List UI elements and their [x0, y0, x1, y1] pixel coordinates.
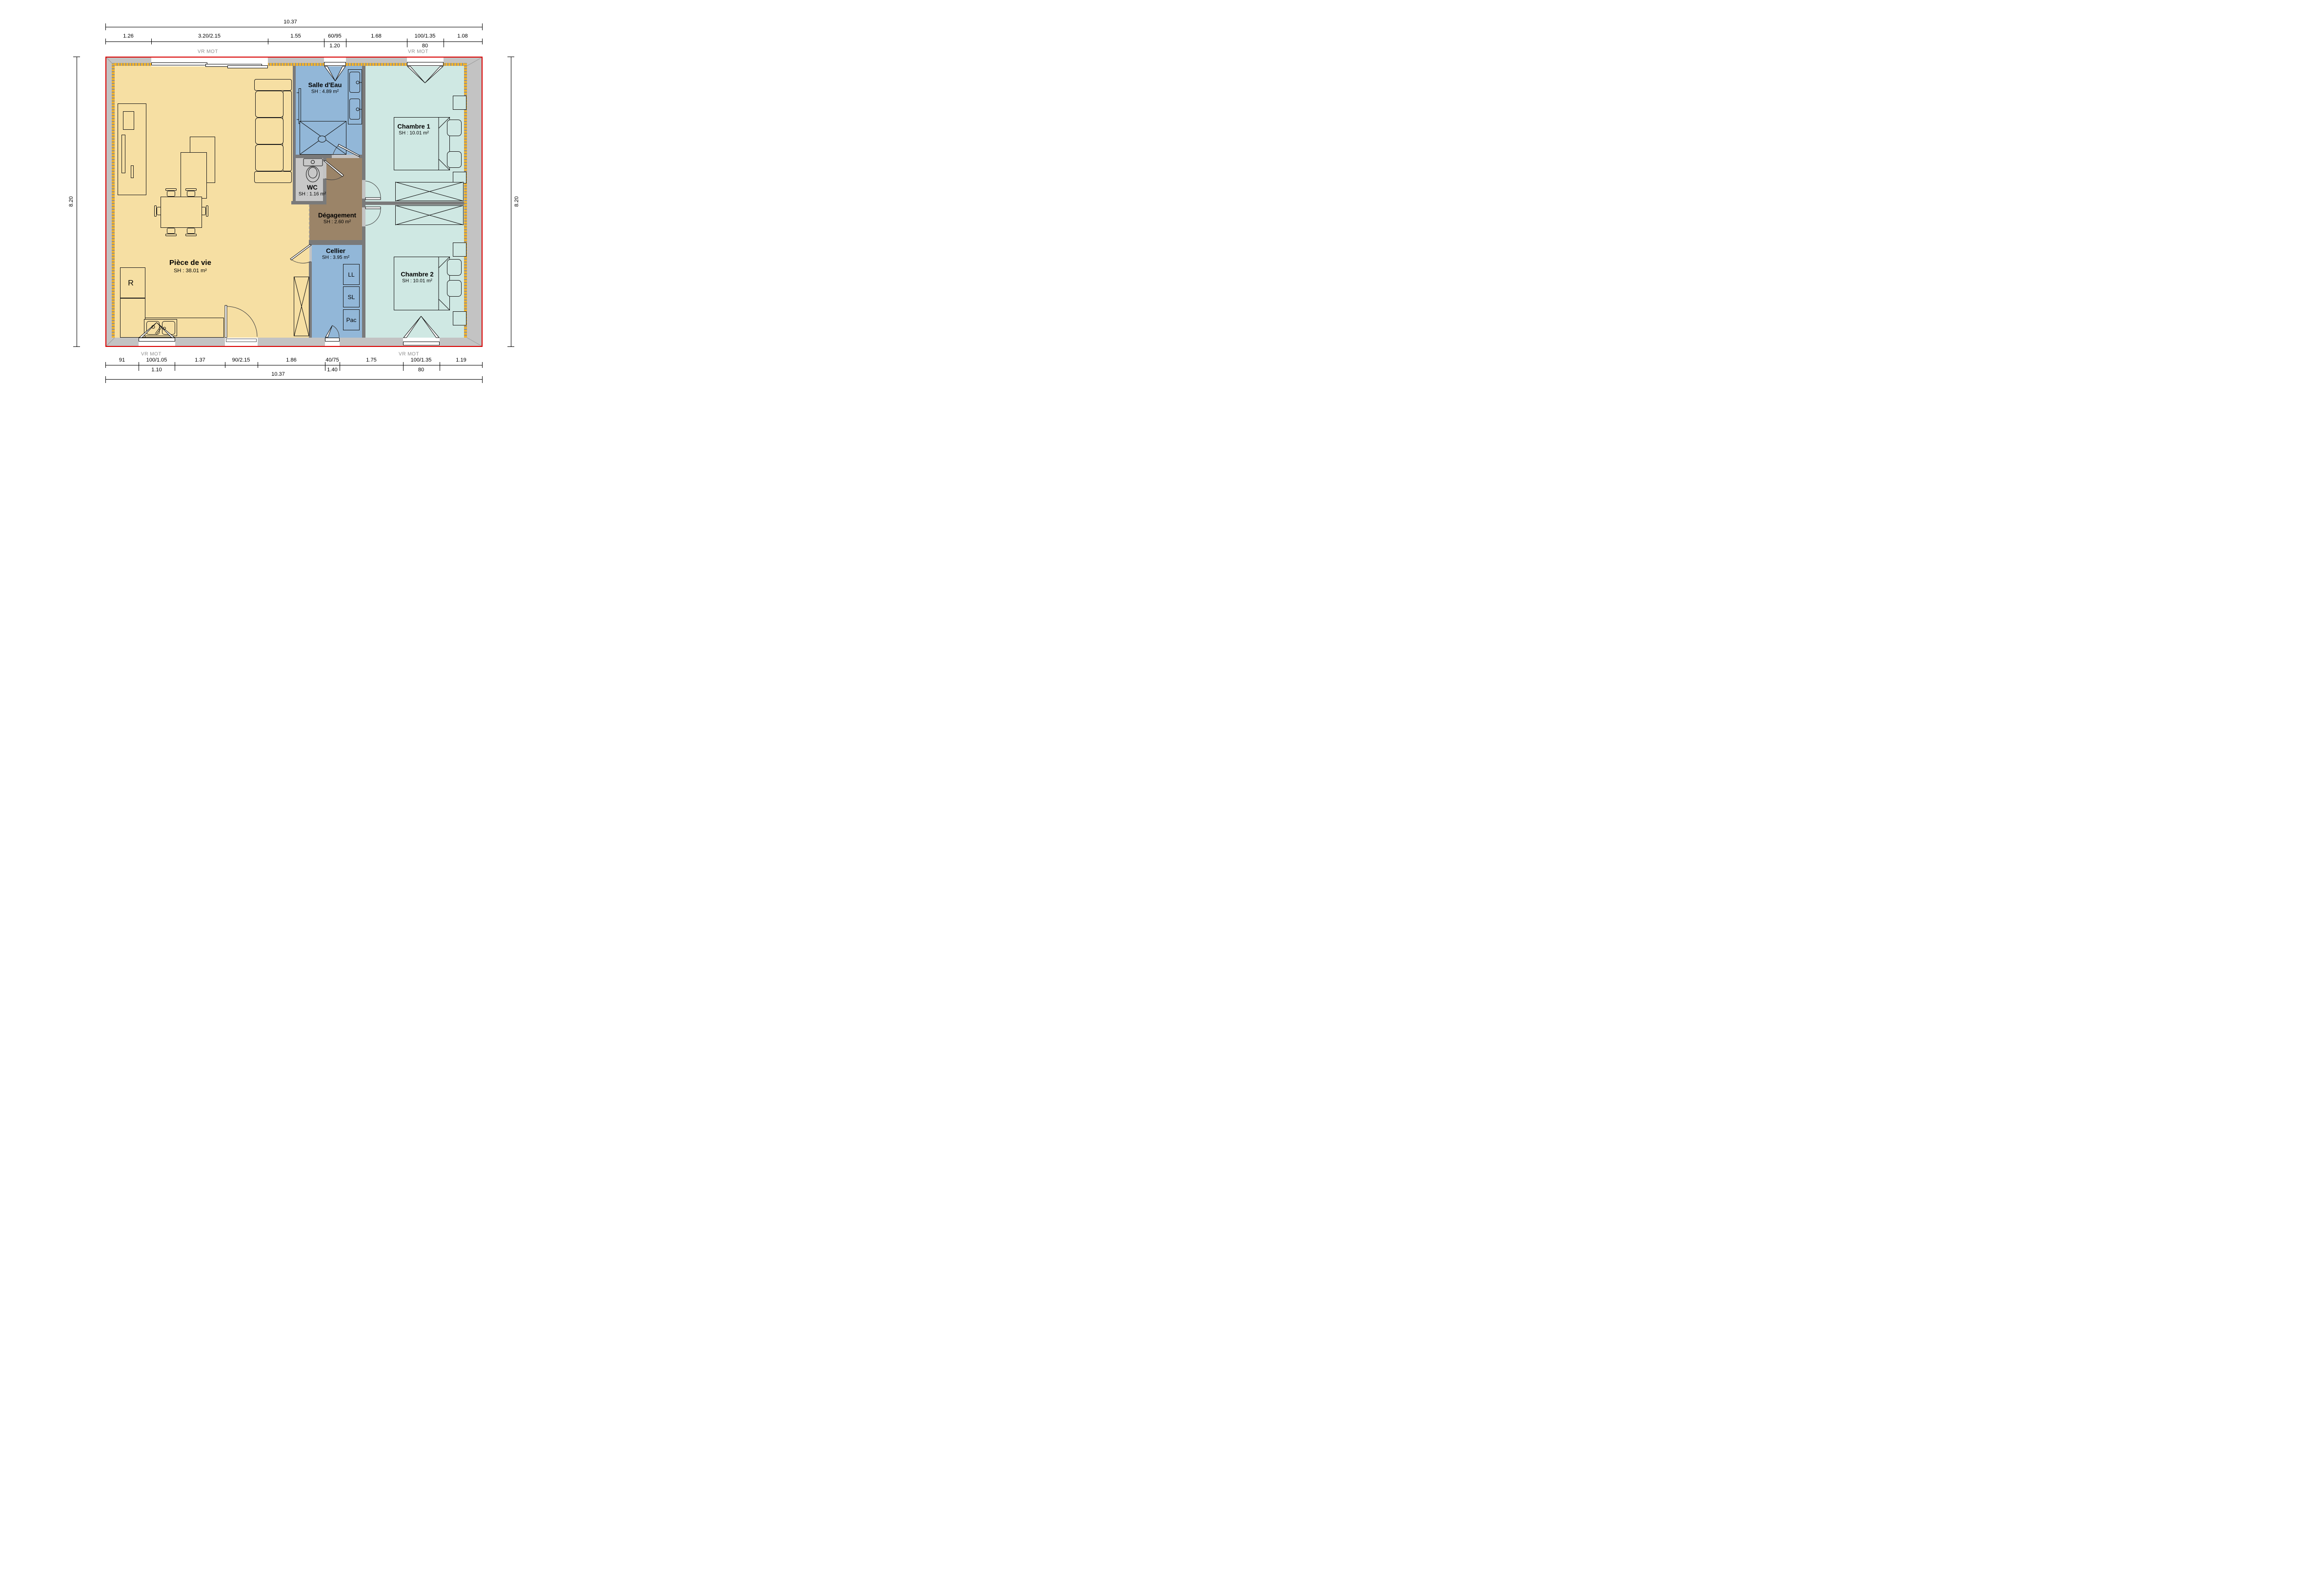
- window-60-95-sill: [324, 62, 346, 66]
- window-100-135-top-sill: [407, 62, 444, 66]
- dryer-label: SL: [348, 294, 355, 301]
- sofa-seat-3: [255, 144, 283, 171]
- window-100-105-sill: [139, 338, 175, 342]
- dim-top-seg-1: 1.26: [123, 33, 133, 39]
- dim-bottom-seg-8: 100/1.35: [411, 357, 432, 363]
- dim-bottom-sub-110: 1.10: [151, 367, 162, 373]
- dim-right-overall: 8.20: [514, 196, 520, 206]
- dim-top-seg-4: 60/95: [328, 33, 342, 39]
- shutter-label-bottom-left: VR MOT: [141, 352, 162, 357]
- dim-bottom-seg-7: 1.75: [366, 357, 376, 363]
- floor-hallway-upper: [326, 158, 362, 204]
- shutter-label-bottom-right: VR MOT: [399, 352, 419, 357]
- wall-bathroom-left: [293, 66, 296, 204]
- dim-top-seg-7: 1.08: [457, 33, 467, 39]
- sink-basin-right: [162, 321, 175, 335]
- media-box: [123, 111, 134, 130]
- sink-basin-left: [146, 321, 160, 335]
- room-label-bathroom: Salle d'Eau SH : 4.89 m²: [308, 81, 342, 96]
- dim-bottom-seg-4: 90/2.15: [232, 357, 250, 363]
- chair-seat: [187, 228, 195, 234]
- nightstand: [453, 242, 466, 257]
- dim-bottom-seg-1: 91: [119, 357, 125, 363]
- nightstand: [453, 96, 466, 110]
- dryer-box: SL: [343, 286, 360, 307]
- sofa-armrest-top: [254, 79, 292, 91]
- remote-control: [131, 165, 134, 178]
- chair-seat: [167, 191, 175, 197]
- towel-radiator: [299, 88, 301, 124]
- bay-window-pane-1: [151, 62, 207, 65]
- dim-left-overall: 8.20: [68, 196, 74, 206]
- floor-plan-page: 10.37 1.26 3.20/2.15 1.55 60/95 1.68 100…: [0, 0, 576, 399]
- chair-seat: [187, 191, 195, 197]
- dim-line-top-segments: [105, 41, 483, 42]
- entrance-door-threshold: [226, 339, 257, 342]
- dim-bottom-sub-80: 80: [418, 367, 424, 373]
- chair-back: [165, 234, 177, 236]
- dim-top-seg-2: 3.20/2.15: [198, 33, 221, 39]
- pillow: [447, 120, 462, 136]
- wall-bedrooms-left-b: [362, 199, 365, 207]
- kitchen-counter-left: [120, 298, 145, 338]
- wall-cellar-top: [309, 240, 362, 245]
- room-label-wc: WC SH : 1.16 m²: [299, 184, 326, 198]
- dim-bottom-seg-2: 100/1.05: [146, 357, 167, 363]
- wall-wc-right-a: [323, 158, 326, 161]
- wall-wc-bottom: [291, 201, 326, 204]
- dim-bottom-overall: 10.37: [271, 371, 285, 377]
- chair-back: [206, 205, 208, 217]
- wall-bathroom-bottom-a: [293, 155, 332, 158]
- wardrobe-bedroom1: [395, 182, 464, 201]
- wall-bedrooms-left-a: [362, 66, 365, 180]
- pillow: [447, 280, 462, 297]
- dim-top-seg-6: 100/1.35: [415, 33, 436, 39]
- pillow: [447, 259, 462, 276]
- storage-cupboard: [294, 277, 309, 336]
- vanity-sink-2: [349, 99, 360, 120]
- room-label-hallway: Dégagement SH : 2.60 m²: [318, 212, 356, 226]
- dim-line-bottom-segments: [105, 365, 483, 365]
- sofa-backrest: [283, 91, 292, 171]
- dim-top-seg-3: 1.55: [290, 33, 301, 39]
- dim-bottom-seg-9: 1.19: [456, 357, 466, 363]
- vanity-sink-1: [349, 72, 360, 93]
- window-40-75-sill: [325, 338, 340, 342]
- window-100-135-bottom-sill: [403, 342, 440, 345]
- heat-pump-box: Pac: [343, 309, 360, 330]
- wardrobe-bedroom2: [395, 205, 464, 225]
- dim-top-overall: 10.37: [283, 19, 297, 25]
- room-label-cellar: Cellier SH : 3.95 m²: [322, 247, 349, 262]
- dim-line-left: [77, 57, 77, 347]
- wall-between-bedrooms: [365, 202, 464, 205]
- chair-back: [185, 234, 197, 236]
- dim-line-bottom-overall: [105, 379, 483, 380]
- wall-bedrooms-left-c: [362, 226, 365, 338]
- dim-top-sub-120: 1.20: [329, 43, 340, 49]
- shutter-label-top-right: VR MOT: [408, 49, 428, 55]
- dim-bottom-sub-140: 1.40: [327, 367, 337, 373]
- dim-bottom-seg-3: 1.37: [195, 357, 205, 363]
- pillow: [447, 151, 462, 168]
- shower-tray: [300, 121, 346, 155]
- dim-bottom-seg-5: 1.86: [286, 357, 296, 363]
- fridge-label: R: [128, 279, 134, 288]
- nightstand: [453, 311, 466, 325]
- dining-table: [161, 197, 202, 228]
- room-label-bedroom2: Chambre 2 SH : 10.01 m²: [401, 271, 433, 285]
- bay-window-pane-3: [227, 65, 268, 68]
- chair-seat: [167, 228, 175, 234]
- heat-pump-label: Pac: [346, 317, 357, 323]
- dim-top-seg-5: 1.68: [371, 33, 381, 39]
- sofa-seat-2: [255, 118, 283, 144]
- dim-bottom-seg-6: 40/75: [325, 357, 339, 363]
- dim-top-sub-80: 80: [422, 43, 428, 49]
- dim-line-right: [511, 57, 511, 347]
- dim-line-top-overall: [105, 27, 483, 27]
- tv-screen: [121, 135, 125, 173]
- washing-machine-label: LL: [348, 271, 354, 278]
- shutter-label-top-left: VR MOT: [198, 49, 218, 55]
- sofa-seat-1: [255, 91, 283, 118]
- room-label-bedroom1: Chambre 1 SH : 10.01 m²: [397, 123, 430, 137]
- washing-machine-box: LL: [343, 264, 360, 285]
- room-label-living: Pièce de vie SH : 38.01 m²: [169, 259, 211, 275]
- sofa-armrest-bottom: [254, 171, 292, 183]
